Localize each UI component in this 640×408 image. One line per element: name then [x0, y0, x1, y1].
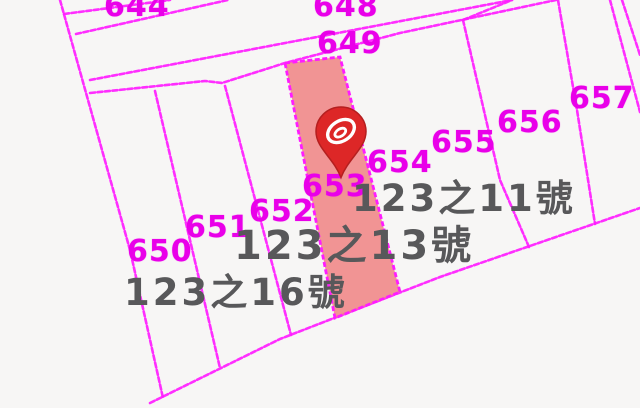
map-pin-icon[interactable]: [316, 107, 366, 178]
cadastral-map: 644 648 649 650 651 652 653 654 655 656 …: [0, 0, 640, 408]
location-marker-layer: [0, 0, 640, 408]
